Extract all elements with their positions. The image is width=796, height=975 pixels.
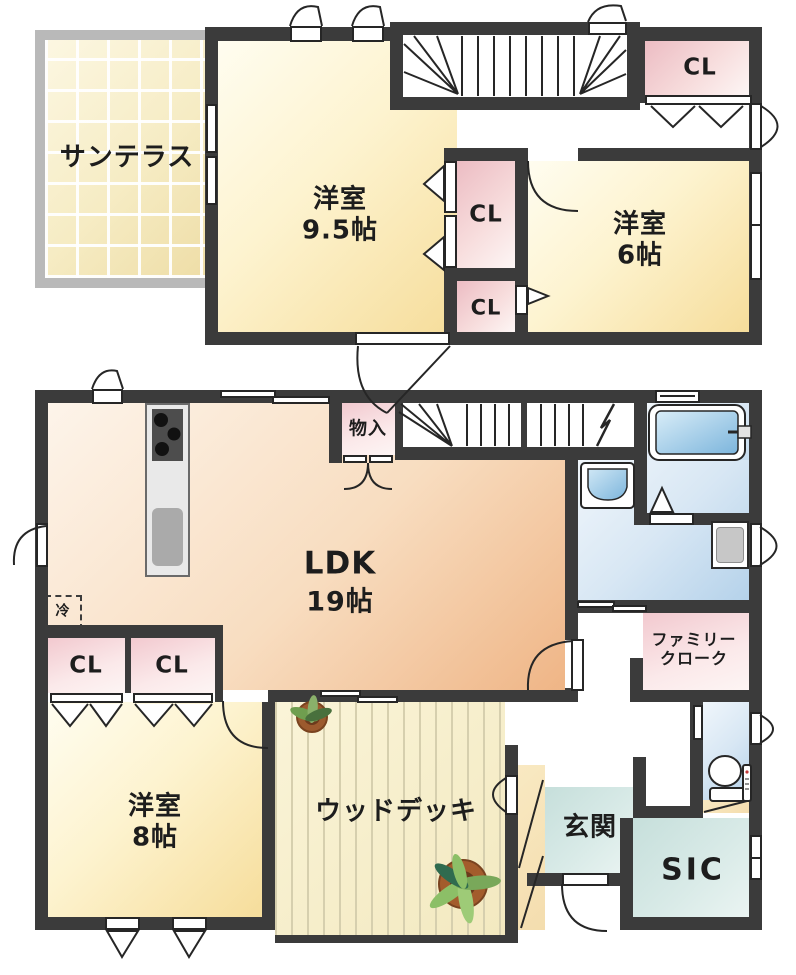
window	[750, 172, 762, 280]
wall	[521, 403, 527, 447]
label-closet-lower-2f: CL	[471, 296, 502, 321]
label-sun-terrace: サンテラス	[60, 143, 194, 174]
wall	[35, 390, 48, 930]
label-storage: 物入	[349, 418, 387, 439]
storage-door	[369, 455, 393, 463]
door-arc	[761, 106, 778, 147]
window-arc	[92, 370, 123, 389]
sliding-window	[220, 390, 276, 398]
wall	[329, 390, 342, 463]
window	[355, 332, 450, 345]
window	[92, 389, 123, 404]
label-closet-upper-2f: CL	[469, 201, 503, 228]
label-ldk: LDK 19帖	[304, 545, 377, 618]
sliding-window	[206, 156, 217, 205]
sliding-door	[612, 605, 647, 612]
window	[290, 26, 322, 42]
wall	[633, 690, 762, 702]
sliding-door	[693, 705, 703, 740]
label-closet-hall-2f: CL	[683, 54, 717, 81]
storage-door	[343, 455, 367, 463]
label-closet-1f-a: CL	[69, 652, 103, 679]
wall	[275, 935, 518, 943]
door-arc	[760, 527, 777, 565]
label-shoe-closet: SIC	[661, 852, 725, 887]
sliding-door	[357, 696, 398, 703]
label-fridge: 冷	[56, 604, 71, 621]
wall	[125, 638, 131, 693]
door-leaf	[750, 523, 762, 567]
floor-plan: サンテラス 洋室 9.5帖 洋室 6帖 CL CL CL LDK 19帖 物入 …	[0, 0, 796, 975]
window-arc	[352, 6, 384, 26]
window	[655, 390, 700, 403]
closet-door	[515, 285, 528, 315]
bifold-door	[699, 106, 743, 127]
door-opening	[528, 148, 578, 161]
label-room-8: 洋室 8帖	[128, 791, 182, 852]
window	[505, 775, 518, 815]
label-wood-deck: ウッドデッキ	[315, 797, 477, 828]
wall	[634, 390, 647, 525]
wall	[627, 27, 762, 41]
door-arc	[588, 5, 626, 22]
label-entrance: 玄関	[563, 813, 617, 844]
wall	[444, 148, 762, 161]
window	[352, 26, 384, 42]
sliding-door	[320, 690, 361, 697]
sliding-window	[272, 396, 330, 404]
window-awning	[107, 931, 138, 957]
wall	[395, 447, 647, 460]
washing-machine	[716, 527, 744, 563]
door-opening	[223, 690, 268, 702]
window	[750, 712, 762, 745]
label-room-6: 洋室 6帖	[613, 209, 667, 270]
closet-door	[444, 161, 457, 213]
label-closet-1f-b: CL	[155, 652, 189, 679]
closet-door	[645, 95, 752, 105]
wall	[632, 27, 645, 103]
wall	[262, 690, 275, 930]
window	[172, 917, 207, 930]
wall	[630, 658, 643, 702]
folding-door-sill	[649, 513, 694, 525]
kitchen-sink	[152, 508, 183, 566]
closet-door	[133, 693, 213, 703]
bifold-door	[651, 106, 695, 127]
wall	[215, 638, 223, 693]
staircase-2f	[403, 35, 627, 97]
label-family-cloak: ファミリー クローク	[651, 631, 736, 669]
wall	[444, 268, 528, 281]
wall	[527, 873, 562, 886]
entrance-slope	[518, 765, 545, 930]
wall	[205, 332, 762, 345]
wall	[35, 917, 275, 930]
closet-door	[444, 215, 457, 268]
window	[36, 523, 48, 567]
window-arc	[290, 6, 322, 26]
window	[105, 917, 140, 930]
closet-door	[50, 693, 123, 703]
label-room-9-5: 洋室 9.5帖	[302, 184, 378, 245]
wall	[620, 917, 762, 930]
wall	[633, 806, 703, 818]
door-leaf	[571, 639, 584, 691]
window	[750, 835, 762, 880]
door-leaf	[588, 22, 627, 35]
door-leaf	[750, 103, 762, 150]
door-leaf	[562, 873, 609, 886]
toilet-room	[703, 702, 749, 800]
wall	[395, 390, 403, 455]
door-arc	[562, 884, 607, 931]
staircase-1f	[403, 403, 630, 447]
stove-icon	[152, 409, 183, 461]
wall	[444, 281, 457, 337]
window-awning	[174, 931, 205, 957]
step	[703, 800, 749, 813]
sliding-window	[206, 104, 217, 153]
wall	[608, 873, 633, 886]
sliding-door	[577, 601, 615, 608]
